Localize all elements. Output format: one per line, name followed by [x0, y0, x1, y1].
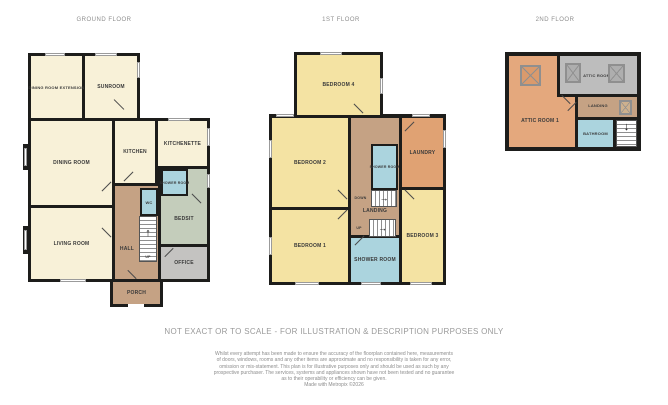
room-bedroom-4: BEDROOM 4: [297, 55, 380, 115]
window: [443, 130, 446, 148]
room-sunroom: SUNROOM: [85, 56, 137, 118]
skylight: [565, 63, 581, 83]
room-label: DINING ROOM EXTENSION: [29, 85, 85, 90]
room-porch: PORCH: [113, 282, 160, 304]
window: [24, 148, 27, 166]
room-bedroom-2: BEDROOM 2: [272, 118, 348, 207]
room-label-attic-room-1: ATTIC ROOM 1: [509, 118, 571, 124]
window: [168, 118, 190, 121]
disclaimer-line: Made with Metropix ©2026: [0, 382, 668, 388]
window: [137, 62, 140, 78]
floorplan-sheet: GROUND FLOOR 1ST FLOOR 2ND FLOOR DINING …: [0, 0, 668, 405]
disclaimer: Whilst every attempt has been made to en…: [0, 351, 668, 389]
room-shower-room-middle: SHOWER ROOM: [371, 144, 398, 190]
stairs-up-label: UP: [351, 226, 367, 230]
window: [60, 279, 86, 282]
room-label: SHOWER ROOM: [354, 257, 396, 263]
window: [410, 282, 432, 285]
room-label: BATHROOM: [583, 131, 608, 136]
window: [276, 114, 294, 117]
window: [361, 282, 381, 285]
room-label: SHOWER ROOM: [160, 181, 190, 185]
room-label: BEDROOM 3: [406, 233, 438, 239]
room-label-bedsit: BEDSIT: [161, 216, 207, 222]
stairs-up-label: UP: [139, 255, 157, 259]
stairs-up-arrow-icon: ↑: [139, 228, 157, 239]
room-label: WC: [145, 200, 152, 205]
window: [45, 53, 65, 56]
window: [412, 114, 430, 117]
room-label-landing-second: LANDING: [578, 103, 618, 108]
door-gap: [128, 304, 144, 307]
window: [24, 230, 27, 250]
room-bedroom-1: BEDROOM 1: [272, 210, 348, 282]
window: [269, 237, 272, 255]
window: [95, 53, 117, 56]
room-label: OFFICE: [174, 260, 194, 266]
window: [320, 52, 342, 55]
room-living-room: LIVING ROOM: [31, 208, 112, 279]
room-label: BEDROOM 1: [294, 243, 326, 249]
window: [295, 282, 319, 285]
room-shower-room-bottom: SHOWER ROOM: [351, 238, 399, 282]
room-bathroom: BATHROOM: [578, 120, 613, 147]
window: [207, 128, 210, 146]
stairs-up-arrow-icon: →: [369, 224, 396, 233]
room-label-hall: HALL: [112, 246, 142, 252]
stairs-down-arrow-icon: →: [371, 194, 397, 203]
room-label: KITCHENETTE: [164, 141, 201, 147]
room-label: SUNROOM: [97, 84, 125, 90]
skylight: [520, 65, 541, 86]
stairs-down-arrow-icon: ↓: [616, 122, 637, 133]
cupboard: [619, 100, 632, 115]
floor-title-first: 1ST FLOOR: [281, 17, 401, 23]
room-label: LIVING ROOM: [54, 241, 90, 247]
window: [380, 78, 383, 94]
room-label: DINING ROOM: [53, 160, 90, 166]
skylight: [608, 64, 625, 83]
stairs-down-label: DOWN: [351, 196, 370, 200]
room-dining-room-extension: DINING ROOM EXTENSION: [31, 56, 82, 118]
room-wc: WC: [140, 188, 158, 216]
room-kitchenette: KITCHENETTE: [158, 121, 207, 166]
footer-note: NOT EXACT OR TO SCALE - FOR ILLUSTRATION…: [0, 327, 668, 336]
room-label: BEDROOM 2: [294, 160, 326, 166]
room-label: KITCHEN: [123, 149, 147, 155]
room-shower-room-ground: SHOWER ROOM: [161, 169, 188, 196]
room-dining-room: DINING ROOM: [31, 121, 112, 205]
room-label: BEDROOM 4: [322, 82, 354, 88]
window: [269, 140, 272, 158]
room-label: LAUNDRY: [410, 150, 436, 156]
window: [207, 174, 210, 188]
room-bedroom-3: BEDROOM 3: [402, 190, 443, 282]
room-kitchen: KITCHEN: [115, 121, 155, 183]
room-label-landing-first: LANDING: [351, 208, 399, 214]
room-label: SHOWER ROOM: [370, 165, 400, 169]
room-label: PORCH: [127, 290, 146, 296]
floor-title-second: 2ND FLOOR: [495, 17, 615, 23]
floor-title-ground: GROUND FLOOR: [44, 17, 164, 23]
